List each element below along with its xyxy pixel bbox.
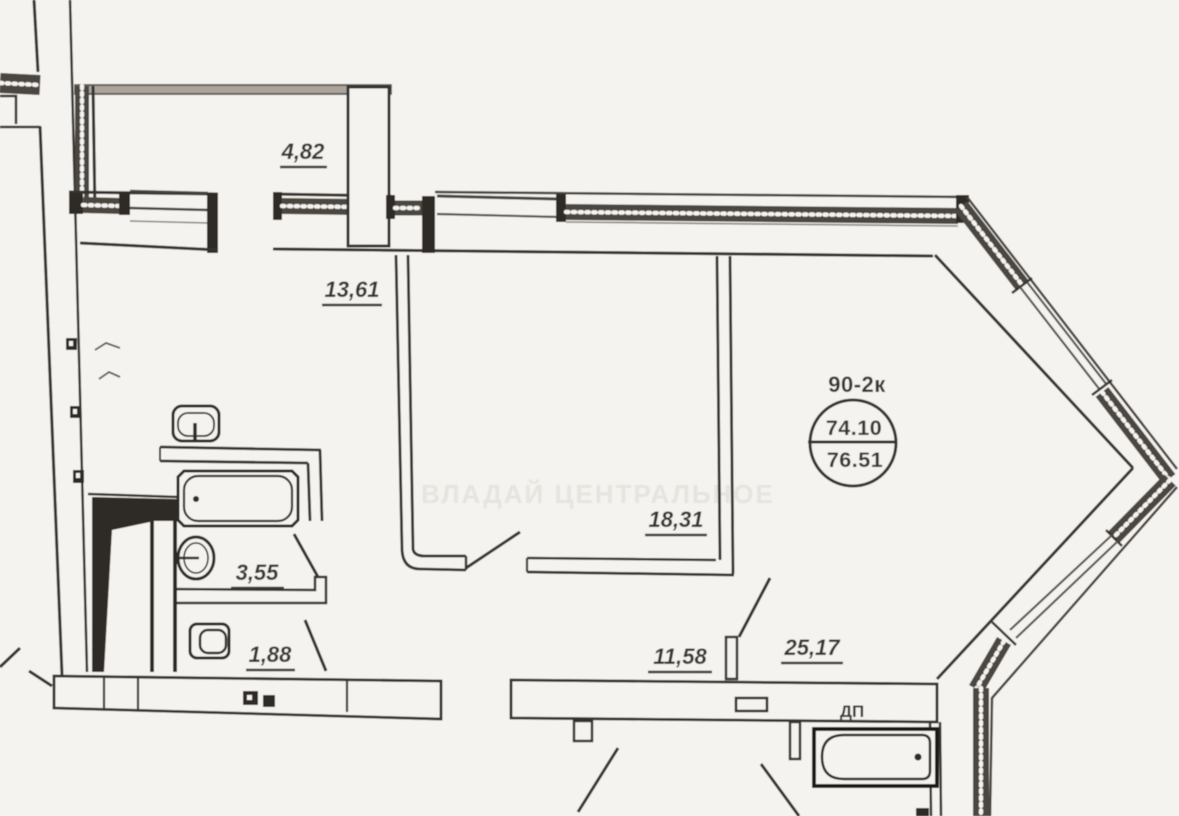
svg-text:ВЛАДАЙ ЦЕНТРАЛЬНОЕ: ВЛАДАЙ ЦЕНТРАЛЬНОЕ (421, 479, 775, 509)
svg-text:76.51: 76.51 (827, 448, 883, 472)
svg-text:25,17: 25,17 (783, 635, 841, 660)
svg-text:74.10: 74.10 (826, 416, 882, 440)
svg-text:ДП: ДП (840, 702, 864, 721)
svg-text:1,88: 1,88 (249, 642, 293, 667)
svg-text:13,61: 13,61 (324, 277, 379, 302)
svg-text:18,31: 18,31 (648, 507, 703, 532)
svg-text:11,58: 11,58 (653, 644, 707, 669)
svg-text:4,82: 4,82 (281, 139, 326, 164)
svg-text:90-2к: 90-2к (828, 372, 886, 397)
svg-text:3,55: 3,55 (236, 560, 280, 585)
